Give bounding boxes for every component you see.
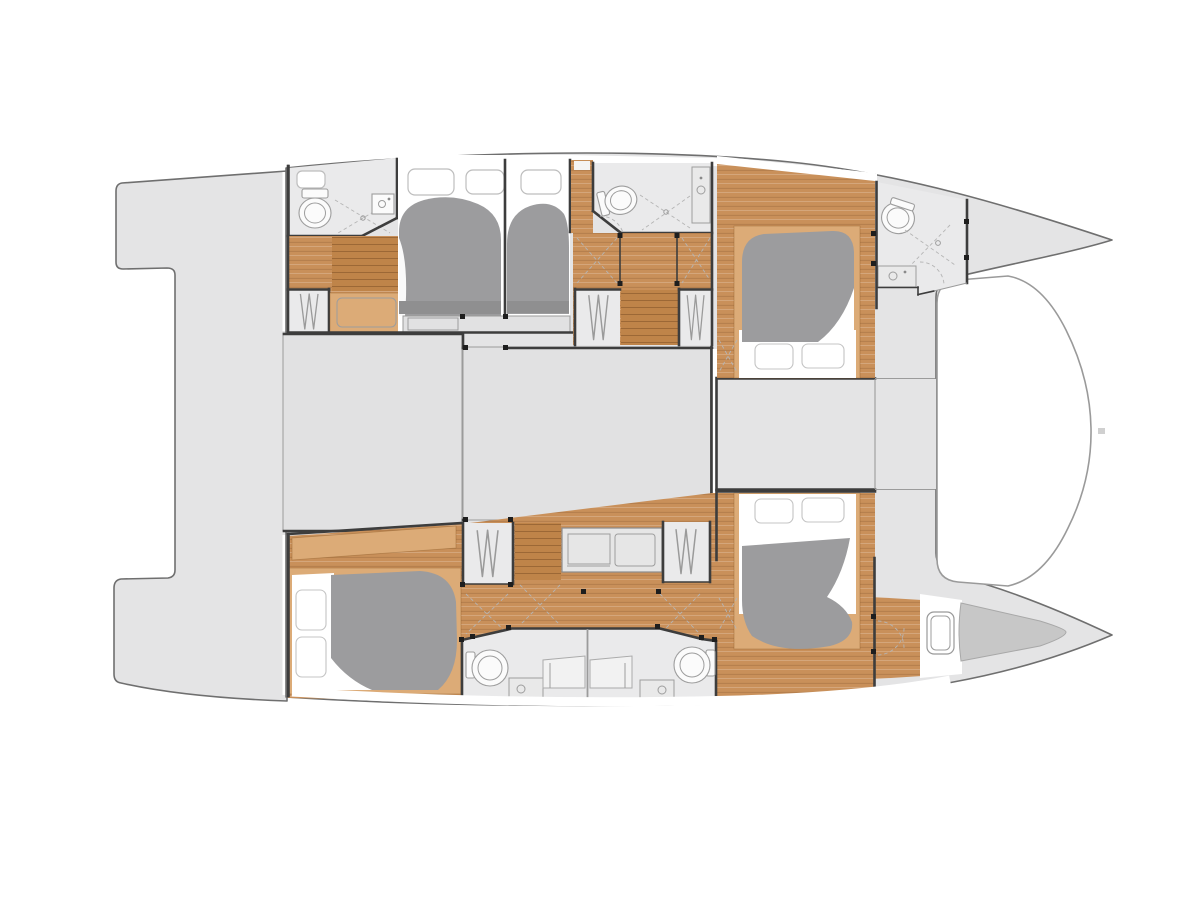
cockpit-shape [114,171,287,701]
shower-icon [543,656,585,688]
stairs-icon [332,237,403,291]
door-hinge-dot [460,314,465,319]
sink-icon [878,266,916,287]
pillow [802,344,844,368]
door-hinge-dot [871,261,876,266]
wood-floor [874,597,922,679]
bench-seat [330,293,403,333]
wardrobe [460,523,513,587]
door-hinge-dot [503,314,508,319]
hatch-icon [927,612,954,654]
wardrobe [575,289,620,345]
wardrobe [663,522,710,582]
door-hinge-dot [503,345,508,350]
sink-icon [692,167,710,223]
window [466,170,504,194]
door-hinge-dot [655,624,660,629]
pillow [755,499,793,523]
starboard-forward-cabin [717,490,876,649]
door-hinge-dot [871,649,876,654]
window [408,169,454,195]
door-hinge-dot [675,233,680,238]
toilet-icon [299,189,331,228]
forestay-fitting [1098,428,1105,434]
door-hinge-dot [459,637,464,642]
stairs-icon [621,290,678,345]
door-hinge-dot [656,589,661,594]
window [297,171,325,188]
sink-icon [372,194,394,214]
floor-plan-svg [0,0,1200,900]
bed-duvet [331,571,457,690]
pillow [296,590,326,630]
door-hinge-dot [871,231,876,236]
door-hinge-dot [964,219,969,224]
bed-foot [507,301,569,313]
door-hinge-dot [675,281,680,286]
door-hinge-dot [618,233,623,238]
pillow [755,344,793,369]
sink-icon [509,678,543,699]
door-hinge-dot [699,635,704,640]
door-hinge-dot [964,255,969,260]
door-hinge-dot [581,589,586,594]
pillow [802,498,844,522]
desk [562,528,662,572]
starboard-central-bathrooms [459,624,717,704]
bed-duvet [399,197,501,316]
bed-foot [399,301,501,314]
trampoline [937,276,1105,586]
wood-floor [571,160,593,233]
catamaran-layout-plan-image [0,0,1200,900]
pillow [296,637,326,677]
window [521,170,561,194]
door-hinge-dot [463,517,468,522]
port-forward-cabin [717,156,875,378]
door-hinge-dot [463,345,468,350]
aft-platform-and-cockpit [114,171,287,701]
door-hinge-dot [470,634,475,639]
wardrobe [288,289,329,333]
door-hinge-dot [508,517,513,522]
saloon-block-forward [463,347,712,520]
door-hinge-dot [712,637,717,642]
door-hinge-dot [618,281,623,286]
door-hinge-dot [506,625,511,630]
port-aft-landing [288,236,403,333]
door-hinge-dot [871,614,876,619]
door-hinge-dot [460,582,465,587]
shower-icon [590,656,632,688]
wardrobe [679,289,712,345]
door-hinge-dot [508,582,513,587]
step [574,161,590,170]
bed-duvet [507,204,569,314]
saloon-block-aft [283,333,462,531]
stairs-icon [515,523,561,580]
